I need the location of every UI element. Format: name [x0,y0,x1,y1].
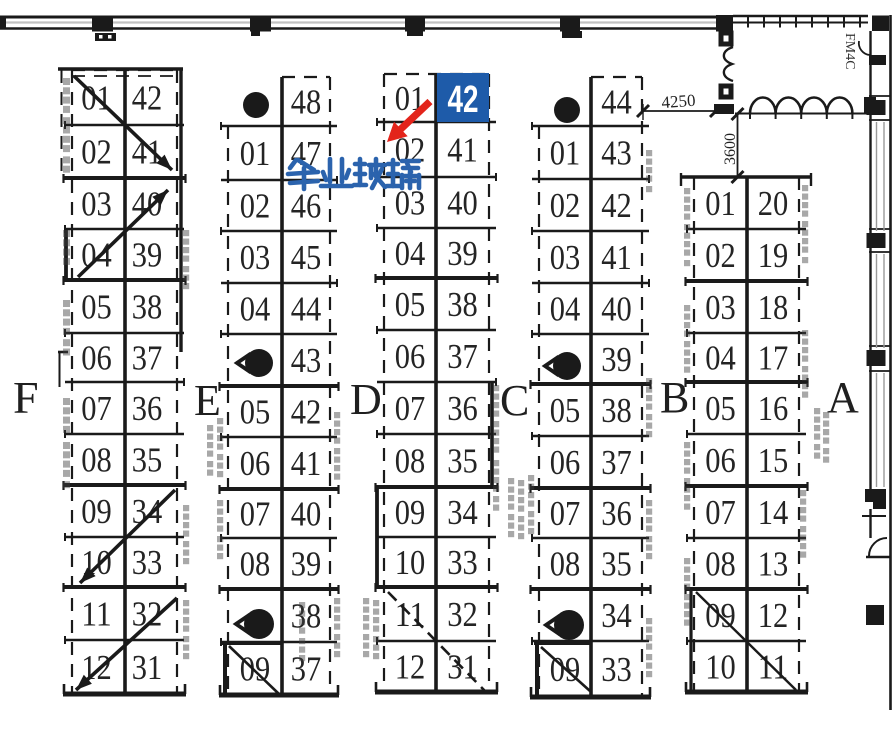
svg-text:04: 04 [705,339,736,378]
svg-text:41: 41 [447,131,478,170]
svg-text:17: 17 [758,339,789,378]
svg-text:37: 37 [291,650,322,689]
svg-text:10: 10 [395,543,426,582]
svg-text:07: 07 [395,389,426,428]
svg-text:09: 09 [395,493,426,532]
svg-text:39: 39 [447,234,478,273]
svg-text:33: 33 [601,650,632,689]
svg-text:35: 35 [447,442,478,481]
svg-text:40: 40 [447,184,478,223]
svg-text:08: 08 [81,441,112,480]
svg-text:44: 44 [291,290,322,329]
svg-text:40: 40 [132,185,163,224]
svg-text:01: 01 [705,184,736,223]
svg-text:41: 41 [601,238,632,277]
svg-text:33: 33 [132,543,163,582]
svg-text:14: 14 [758,493,789,532]
svg-text:44: 44 [601,83,632,122]
svg-text:03: 03 [550,238,581,277]
svg-text:39: 39 [132,236,163,275]
svg-text:36: 36 [447,389,478,428]
svg-text:05: 05 [395,285,426,324]
svg-text:32: 32 [447,595,478,634]
svg-text:20: 20 [758,184,789,223]
svg-text:34: 34 [601,596,632,635]
svg-text:31: 31 [132,648,163,687]
svg-text:02: 02 [240,187,271,226]
svg-text:06: 06 [81,339,112,378]
svg-text:42: 42 [448,79,479,121]
svg-text:18: 18 [758,288,789,327]
svg-text:13: 13 [758,545,789,584]
svg-text:37: 37 [601,443,632,482]
svg-text:35: 35 [132,441,163,480]
svg-text:48: 48 [291,83,322,122]
svg-text:41: 41 [291,444,322,483]
svg-text:38: 38 [132,288,163,327]
svg-text:08: 08 [240,545,271,584]
svg-text:12: 12 [758,596,789,635]
svg-text:04: 04 [550,290,581,329]
svg-text:F: F [13,372,39,423]
svg-text:03: 03 [705,288,736,327]
svg-text:E: E [194,376,221,425]
svg-text:16: 16 [758,389,789,428]
svg-text:04: 04 [240,290,271,329]
svg-text:11: 11 [81,595,112,634]
svg-text:06: 06 [240,444,271,483]
svg-text:43: 43 [291,341,322,380]
svg-text:02: 02 [705,236,736,275]
svg-text:08: 08 [395,442,426,481]
svg-text:05: 05 [81,288,112,327]
svg-text:40: 40 [601,290,632,329]
svg-text:05: 05 [550,391,581,430]
svg-text:4250: 4250 [661,91,696,112]
svg-text:39: 39 [291,545,322,584]
svg-text:02: 02 [81,133,112,172]
svg-text:45: 45 [291,238,322,277]
svg-text:3600: 3600 [722,133,739,165]
svg-text:42: 42 [601,186,632,225]
svg-text:07: 07 [81,389,112,428]
svg-text:42: 42 [291,393,322,432]
svg-text:B: B [660,373,689,422]
svg-text:08: 08 [550,545,581,584]
svg-text:09: 09 [81,492,112,531]
svg-text:15: 15 [758,441,789,480]
svg-text:36: 36 [132,389,163,428]
svg-text:43: 43 [601,134,632,173]
svg-text:C: C [500,376,529,425]
svg-text:06: 06 [395,337,426,376]
svg-text:41: 41 [132,133,163,172]
svg-text:06: 06 [550,443,581,482]
svg-text:40: 40 [291,495,322,534]
svg-text:07: 07 [550,494,581,533]
svg-text:10: 10 [705,648,736,687]
svg-text:38: 38 [601,391,632,430]
svg-text:42: 42 [132,79,163,118]
svg-text:38: 38 [291,597,322,636]
svg-text:38: 38 [447,285,478,324]
svg-text:07: 07 [240,495,271,534]
svg-text:37: 37 [132,339,163,378]
svg-text:35: 35 [601,545,632,584]
svg-text:02: 02 [550,186,581,225]
svg-text:D: D [350,375,382,424]
svg-text:04: 04 [395,234,426,273]
svg-text:05: 05 [705,389,736,428]
svg-text:01: 01 [550,134,581,173]
svg-text:A: A [827,373,859,422]
svg-text:06: 06 [705,441,736,480]
svg-text:05: 05 [240,393,271,432]
svg-text:19: 19 [758,236,789,275]
svg-text:39: 39 [601,340,632,379]
svg-text:01: 01 [240,134,271,173]
svg-text:08: 08 [705,545,736,584]
svg-text:03: 03 [240,238,271,277]
svg-text:37: 37 [447,337,478,376]
svg-text:FM4C: FM4C [842,33,857,70]
svg-text:33: 33 [447,543,478,582]
svg-text:36: 36 [601,494,632,533]
svg-text:34: 34 [447,493,478,532]
svg-text:03: 03 [81,185,112,224]
svg-text:11: 11 [395,595,426,634]
svg-text:12: 12 [395,648,426,687]
svg-text:46: 46 [291,187,322,226]
svg-text:34: 34 [132,492,163,531]
svg-text:07: 07 [705,493,736,532]
